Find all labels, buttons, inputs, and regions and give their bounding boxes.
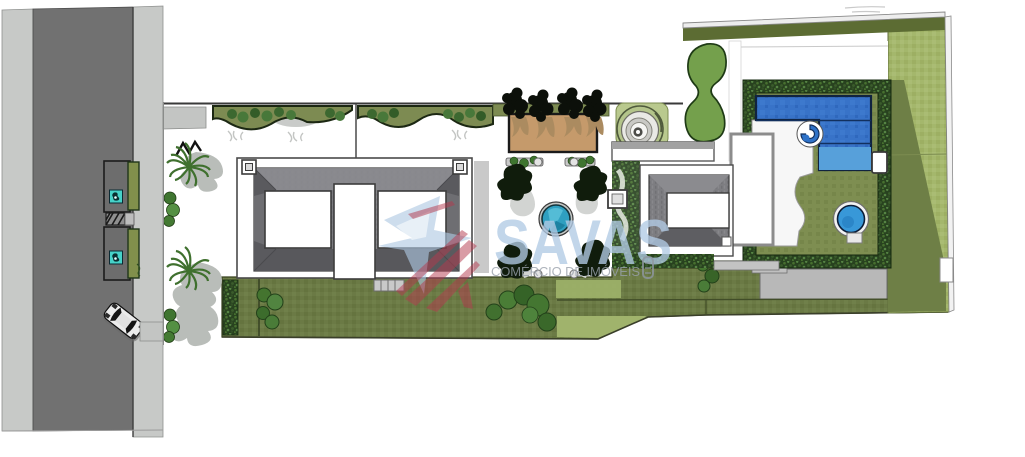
svg-text:COMÉRCIO DE IMÓVEIS: COMÉRCIO DE IMÓVEIS — [491, 264, 640, 279]
